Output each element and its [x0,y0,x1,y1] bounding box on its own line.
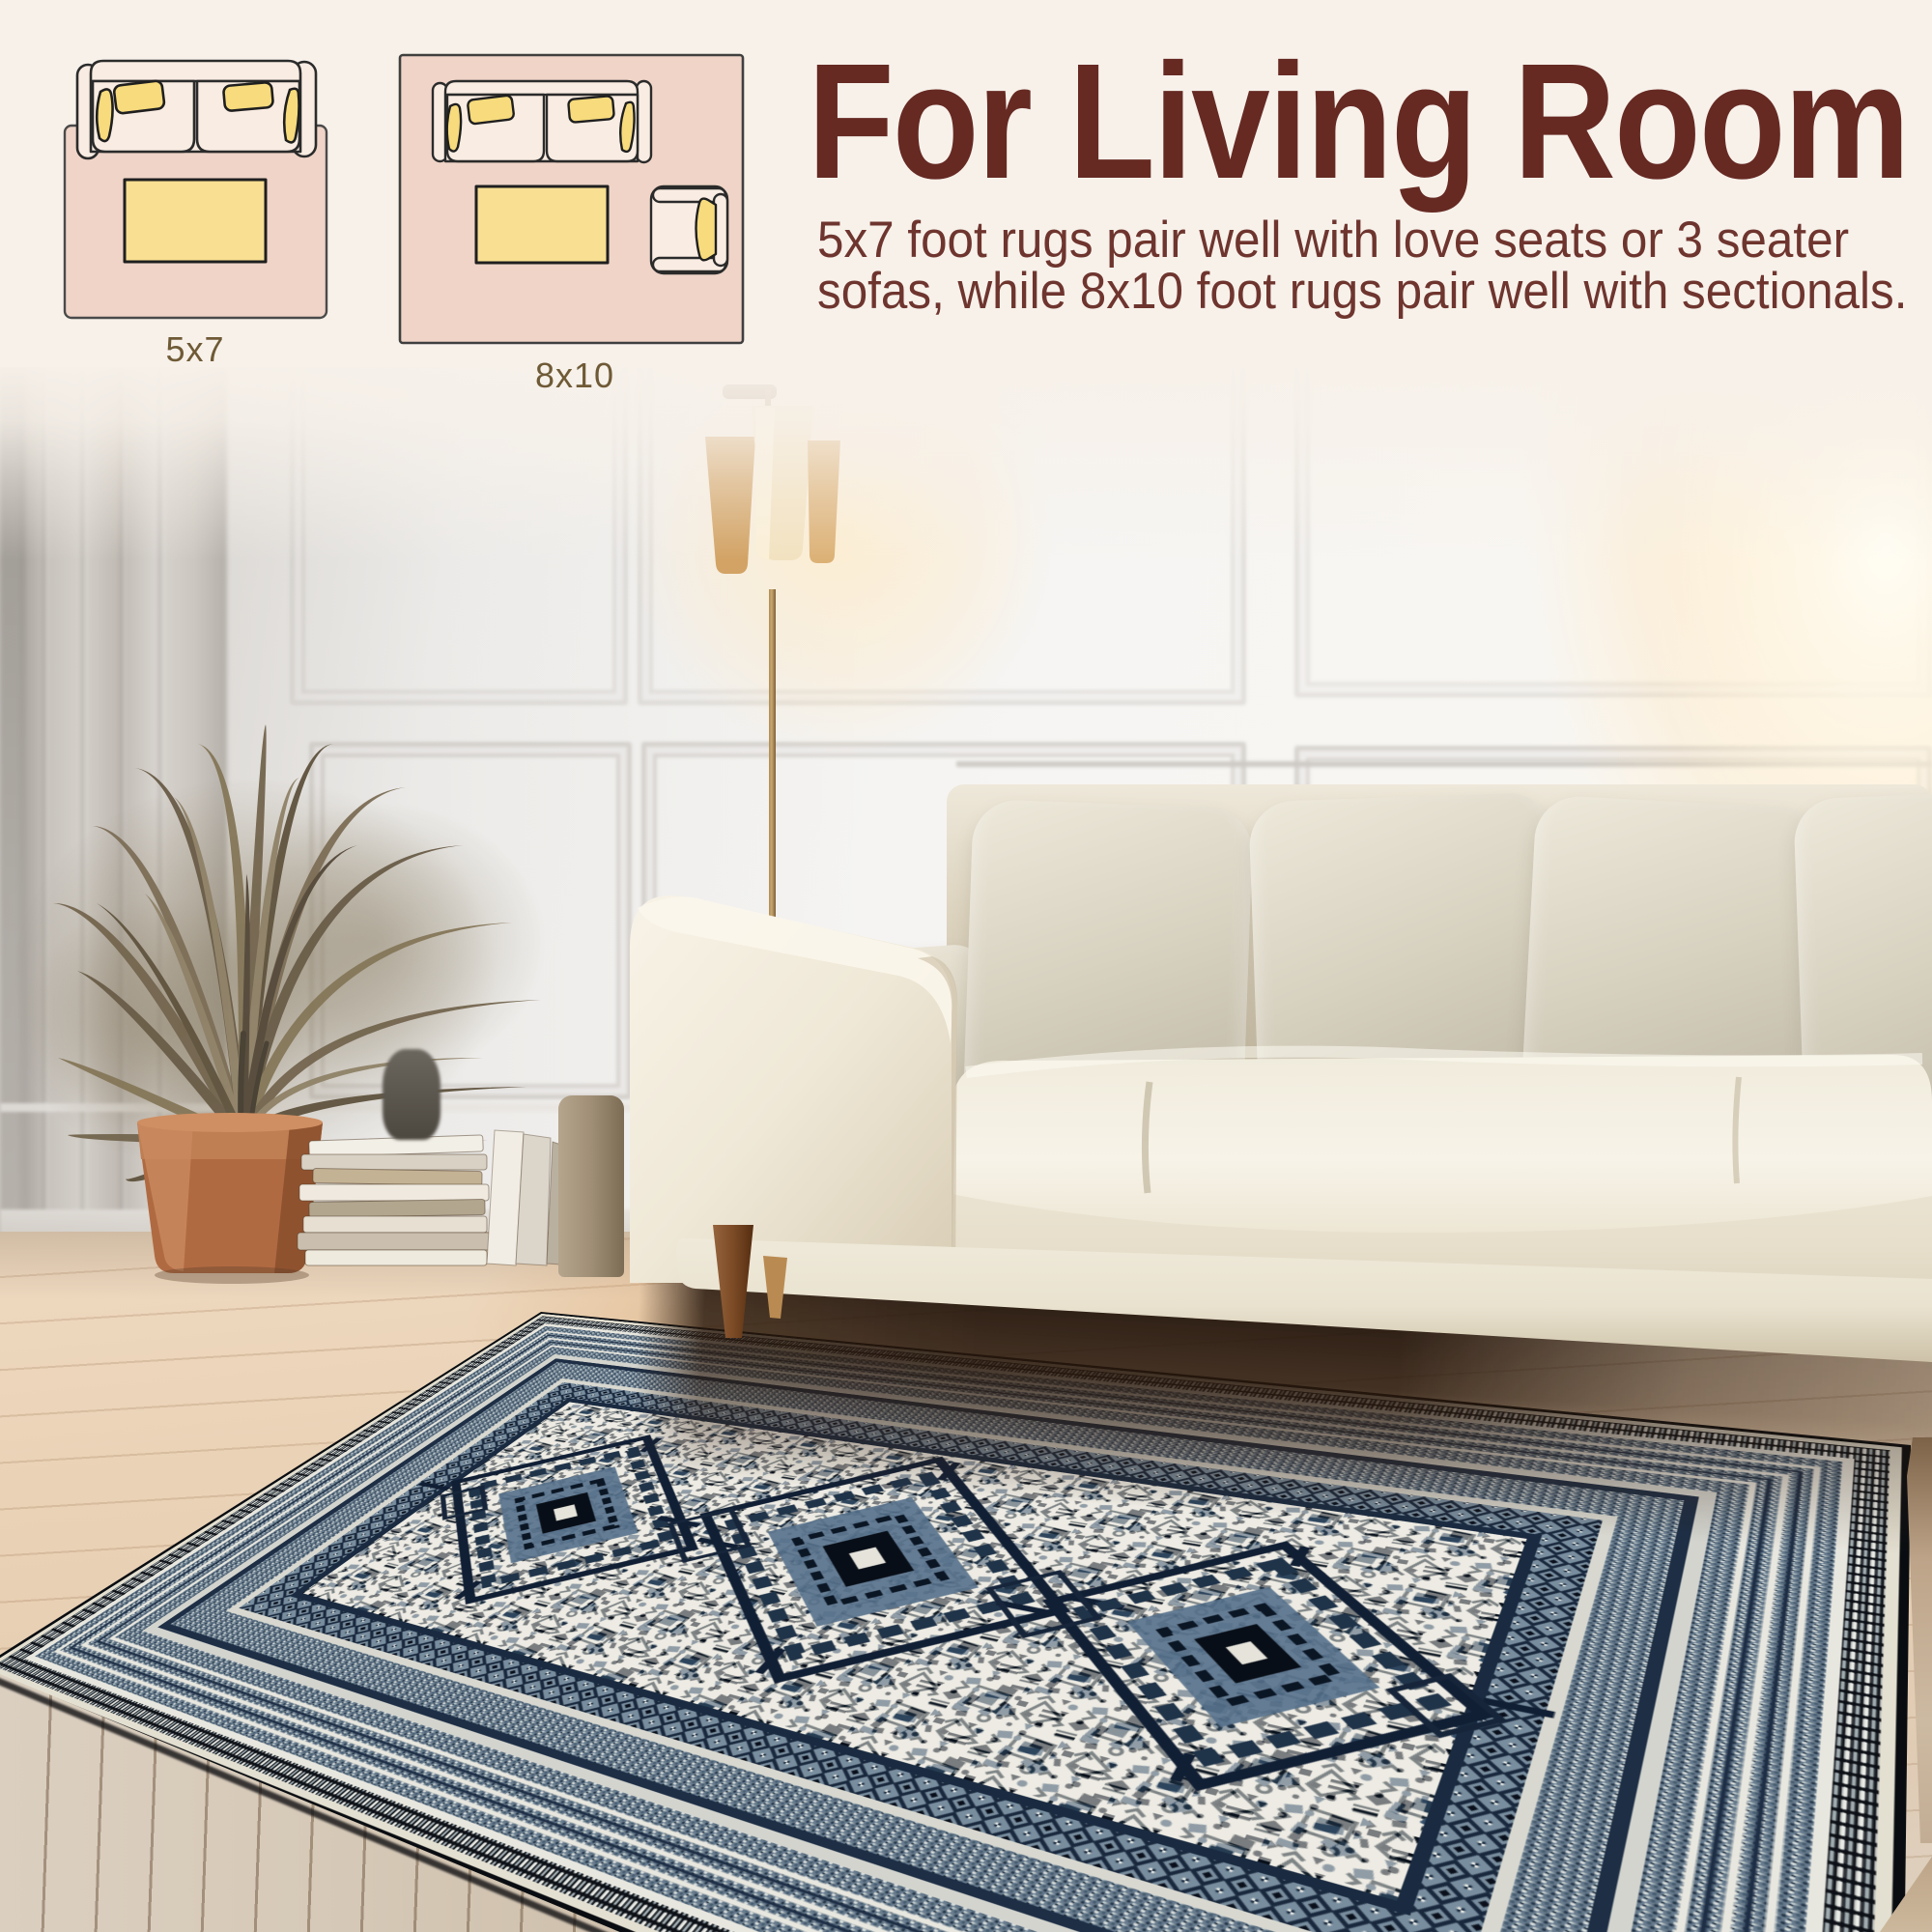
svg-text:5x7: 5x7 [165,329,224,369]
svg-text:8x10: 8x10 [535,355,614,395]
